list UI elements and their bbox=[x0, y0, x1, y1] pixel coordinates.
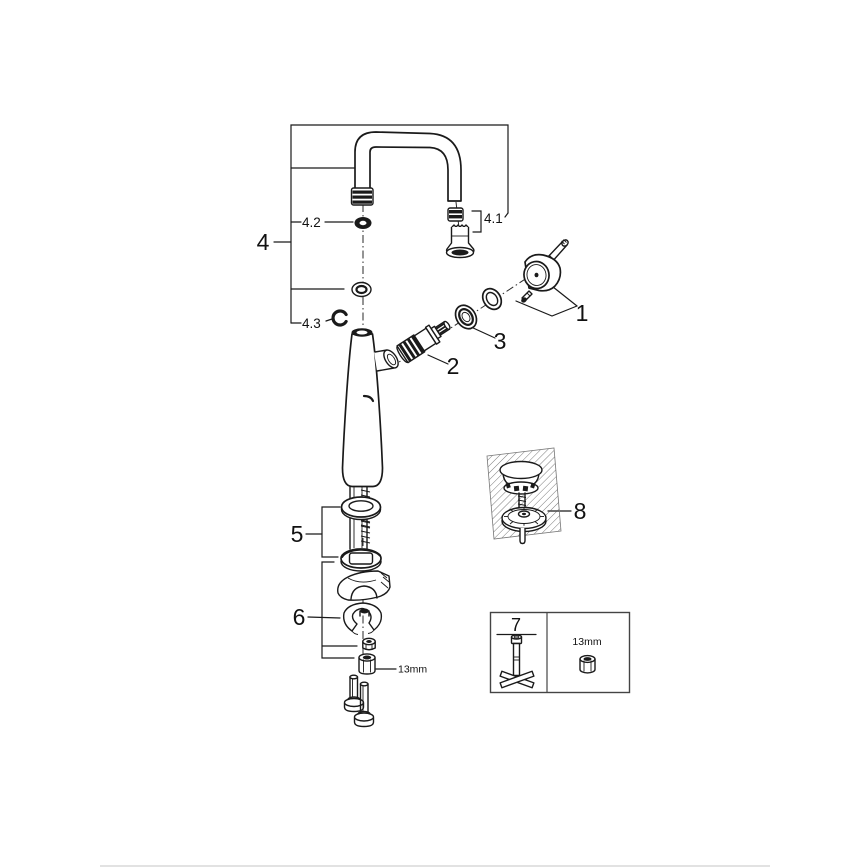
callout-2: 2 bbox=[447, 353, 460, 379]
callout-3: 3 bbox=[494, 328, 507, 354]
callout-4-2: 4.2 bbox=[302, 215, 321, 230]
callout-6: 6 bbox=[293, 604, 306, 630]
callout-1: 1 bbox=[576, 300, 589, 326]
callout-4-3: 4.3 bbox=[302, 316, 321, 331]
hex-nut-small bbox=[363, 638, 375, 650]
callout-4-1: 4.1 bbox=[484, 211, 503, 226]
mounting-saddle bbox=[338, 571, 390, 600]
handle-set-screw bbox=[520, 291, 532, 304]
ceramic-cartridge bbox=[395, 316, 454, 364]
drain-plug-assembly bbox=[487, 448, 561, 544]
callout-8: 8 bbox=[574, 498, 587, 524]
callout-5: 5 bbox=[291, 521, 304, 547]
group-4-1-bracket bbox=[472, 211, 481, 232]
callout-7: 7 bbox=[511, 615, 521, 635]
nut-size-label: 13mm bbox=[398, 664, 427, 676]
shank-o-ring bbox=[342, 497, 381, 520]
cap-ring-cover bbox=[479, 285, 505, 313]
mousseur bbox=[447, 225, 474, 258]
cartridge-cap-ring-set bbox=[451, 285, 505, 333]
faucet-body bbox=[343, 328, 402, 486]
socket-nut-icon bbox=[580, 656, 595, 673]
box-nut-size-label: 13mm bbox=[572, 636, 601, 648]
cartridge-port bbox=[374, 348, 401, 371]
bearing-slip-ring bbox=[352, 283, 371, 297]
drain-tail-rod bbox=[520, 528, 525, 544]
threaded-shank bbox=[341, 487, 381, 571]
supply-hoses bbox=[345, 675, 374, 726]
aerator-4-1 bbox=[447, 208, 474, 258]
callout-4: 4 bbox=[257, 229, 270, 255]
swivel-spout bbox=[333, 132, 461, 325]
parts-diagram-page: 1 2 3 4 4.1 4.2 4.3 5 6 7 8 13mm 13mm bbox=[0, 0, 868, 868]
cap-ring-threaded bbox=[451, 301, 481, 332]
mounting-washer bbox=[341, 549, 381, 571]
exploded-diagram: 1 2 3 4 4.1 4.2 4.3 5 6 7 8 13mm 13mm bbox=[0, 0, 868, 868]
aerator-seal-ring bbox=[448, 208, 463, 221]
retaining-clip-4-3 bbox=[333, 311, 346, 325]
spout-o-ring-4-2 bbox=[355, 217, 372, 229]
group-5-bracket bbox=[306, 507, 340, 557]
hex-nut-13mm bbox=[359, 654, 375, 674]
drain-cap bbox=[500, 462, 542, 479]
spout-collar bbox=[352, 188, 374, 205]
